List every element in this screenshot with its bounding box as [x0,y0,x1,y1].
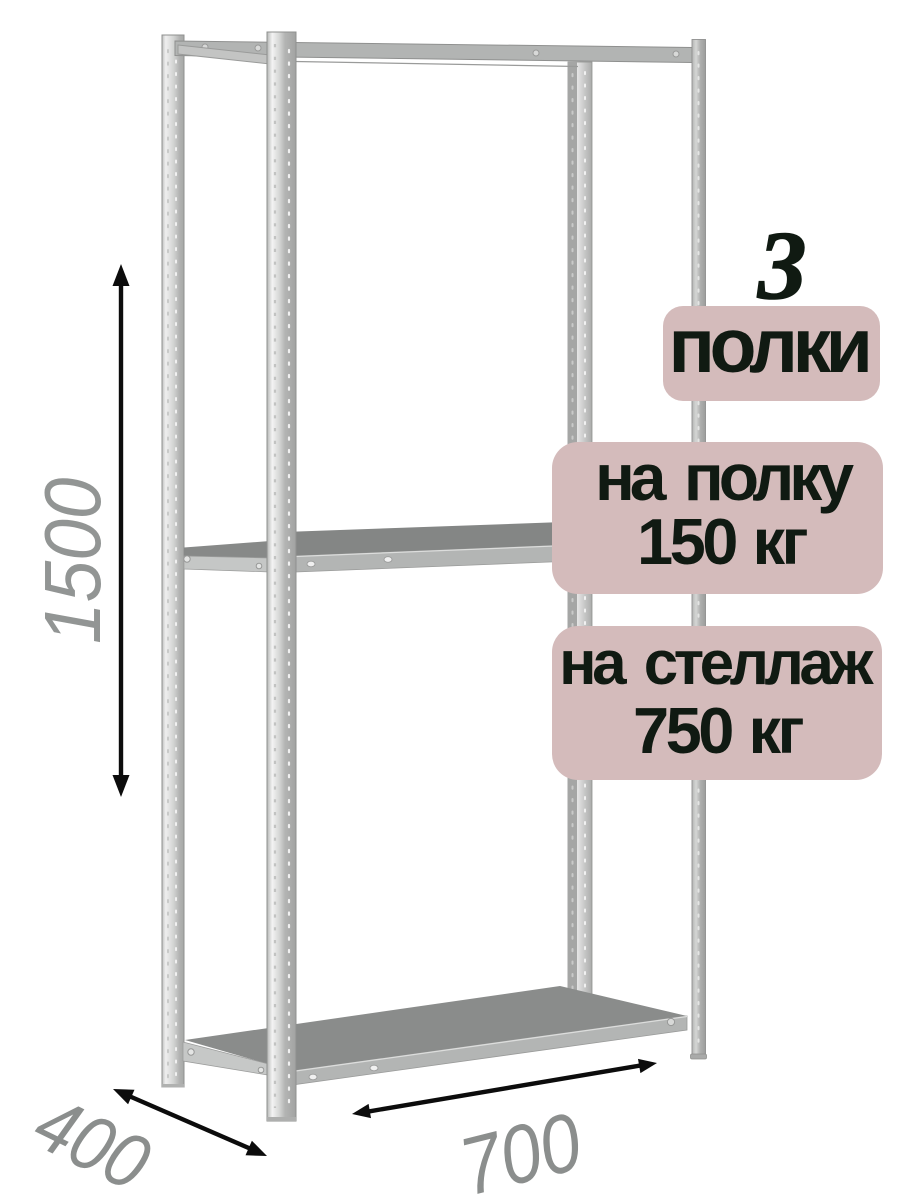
svg-text:150 кг: 150 кг [637,505,808,578]
svg-text:400: 400 [22,1078,164,1200]
svg-text:на полку: на полку [595,440,854,514]
svg-text:на стеллаж: на стеллаж [559,629,874,698]
svg-text:750 кг: 750 кг [633,694,804,767]
svg-text:полки: полки [669,303,868,389]
svg-text:700: 700 [451,1096,590,1200]
svg-text:1500: 1500 [29,478,118,644]
